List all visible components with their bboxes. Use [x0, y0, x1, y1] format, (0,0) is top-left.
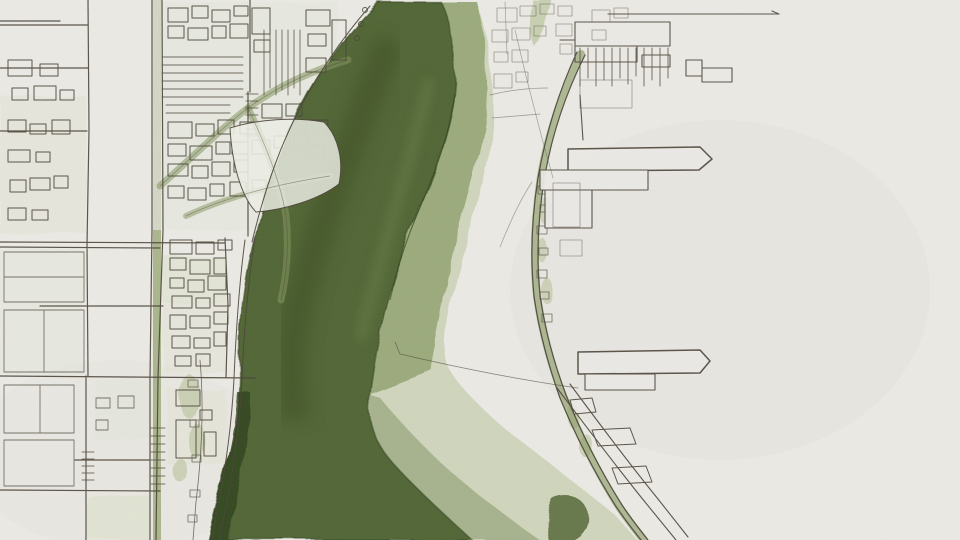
watercolor-map-svg [0, 0, 960, 540]
map-canvas [0, 0, 960, 540]
paper-grain-overlay [0, 0, 960, 540]
